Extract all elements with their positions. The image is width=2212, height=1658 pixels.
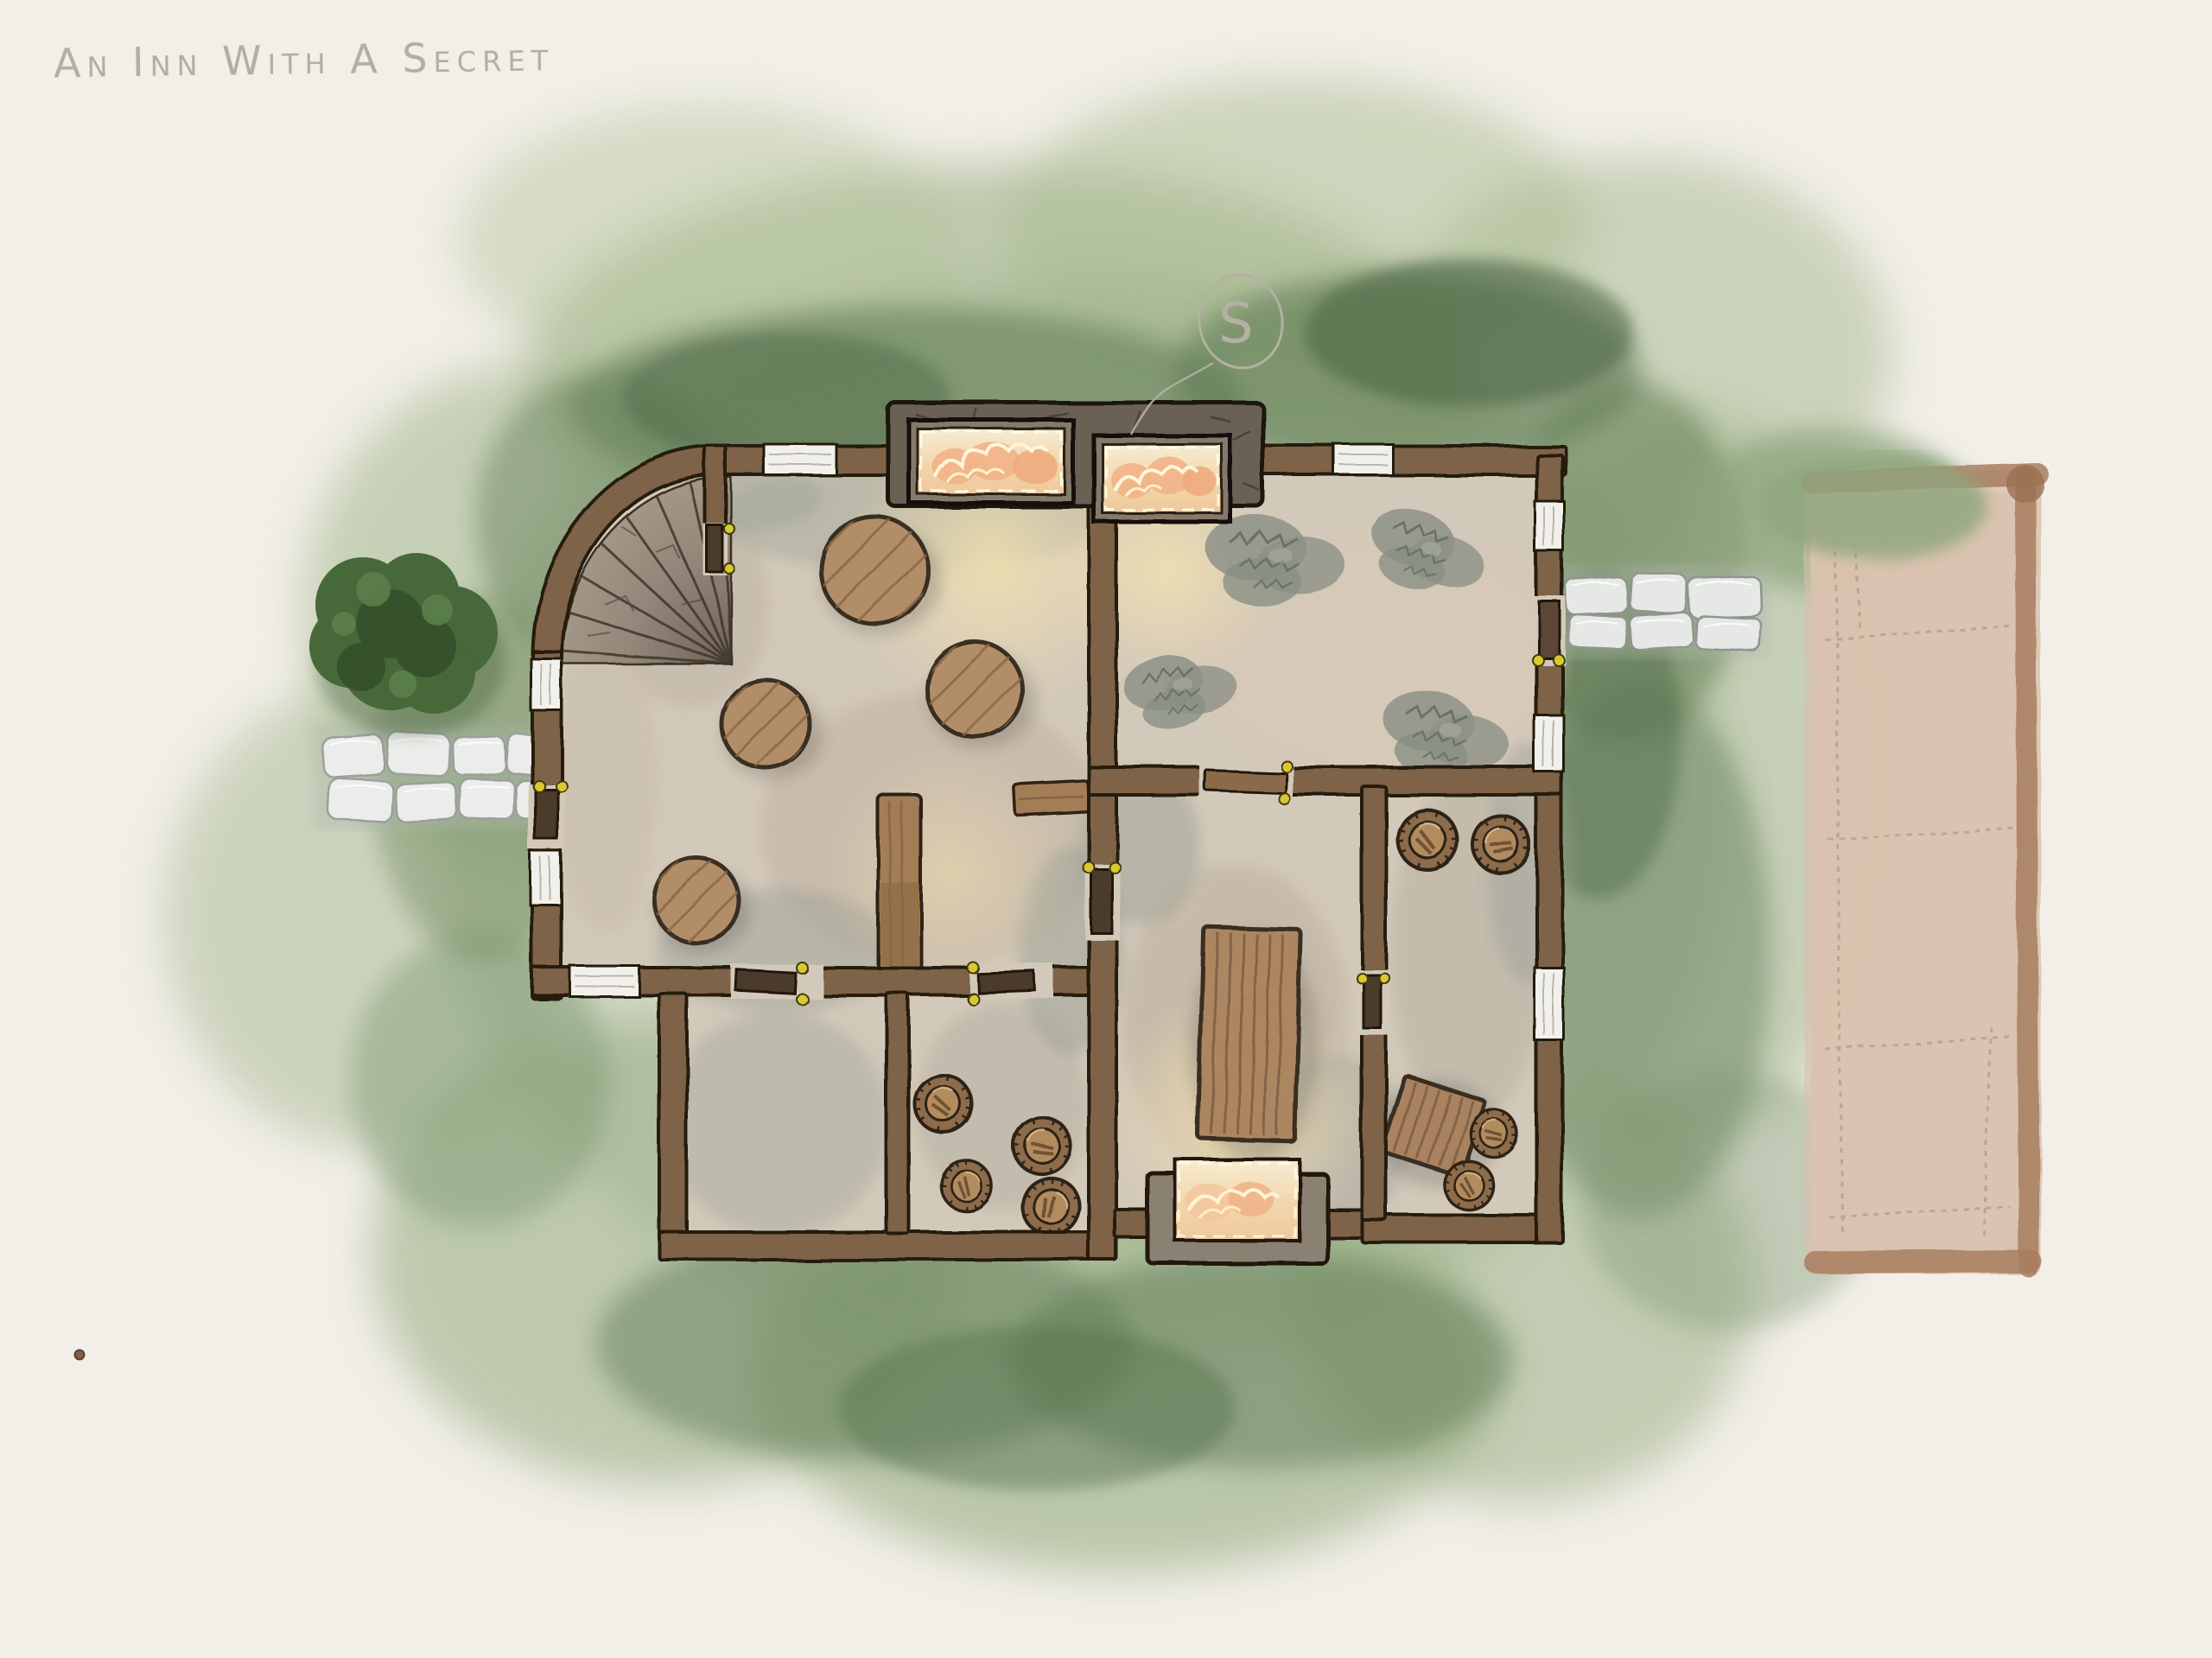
long-table xyxy=(1198,927,1300,1142)
red-dot xyxy=(75,1350,85,1360)
annex-sketch xyxy=(1763,452,2044,1274)
stone-path-west xyxy=(313,726,555,829)
stone-path-east xyxy=(1559,565,1770,658)
south-fireplace xyxy=(1147,1159,1327,1263)
door-east-entrance xyxy=(1539,601,1560,658)
north-fireplace-block xyxy=(888,403,1263,522)
door-tavern-central xyxy=(1091,869,1112,933)
grass-over-annex xyxy=(1763,452,1987,559)
door-northeast-room xyxy=(1205,769,1287,792)
firebox-west xyxy=(909,420,1073,503)
door-south-room-east xyxy=(978,972,1036,993)
map-title: An Inn With A Secret xyxy=(54,33,555,86)
door-west-entrance xyxy=(536,790,558,840)
secret-letter: S xyxy=(1218,292,1254,356)
wall-counter xyxy=(1014,781,1090,816)
map-canvas: S An Inn With A Secret xyxy=(0,0,2212,1658)
inn-building xyxy=(529,403,1573,1263)
bar-counter xyxy=(878,795,921,973)
firebox-east xyxy=(1094,435,1230,522)
door-south-room-west xyxy=(735,969,795,994)
inn-map-illustration: S An Inn With A Secret xyxy=(0,0,2212,1658)
door-staircase xyxy=(707,525,722,572)
door-central-storage xyxy=(1363,975,1381,1028)
